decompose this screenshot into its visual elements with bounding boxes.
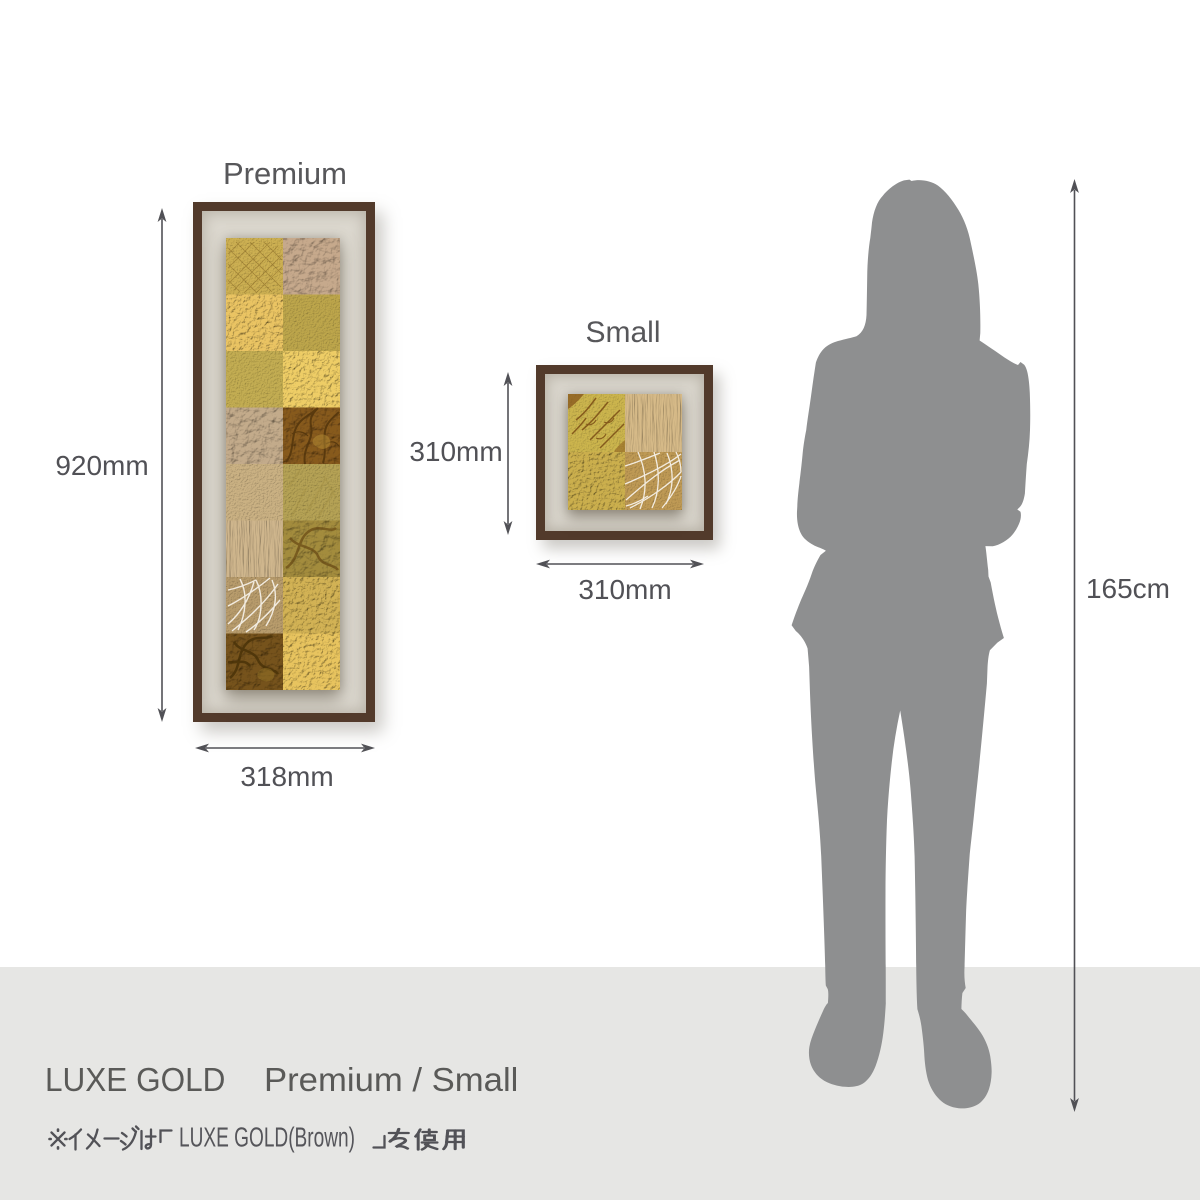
svg-text:LUXE GOLD(Brown): LUXE GOLD(Brown): [179, 1122, 355, 1153]
